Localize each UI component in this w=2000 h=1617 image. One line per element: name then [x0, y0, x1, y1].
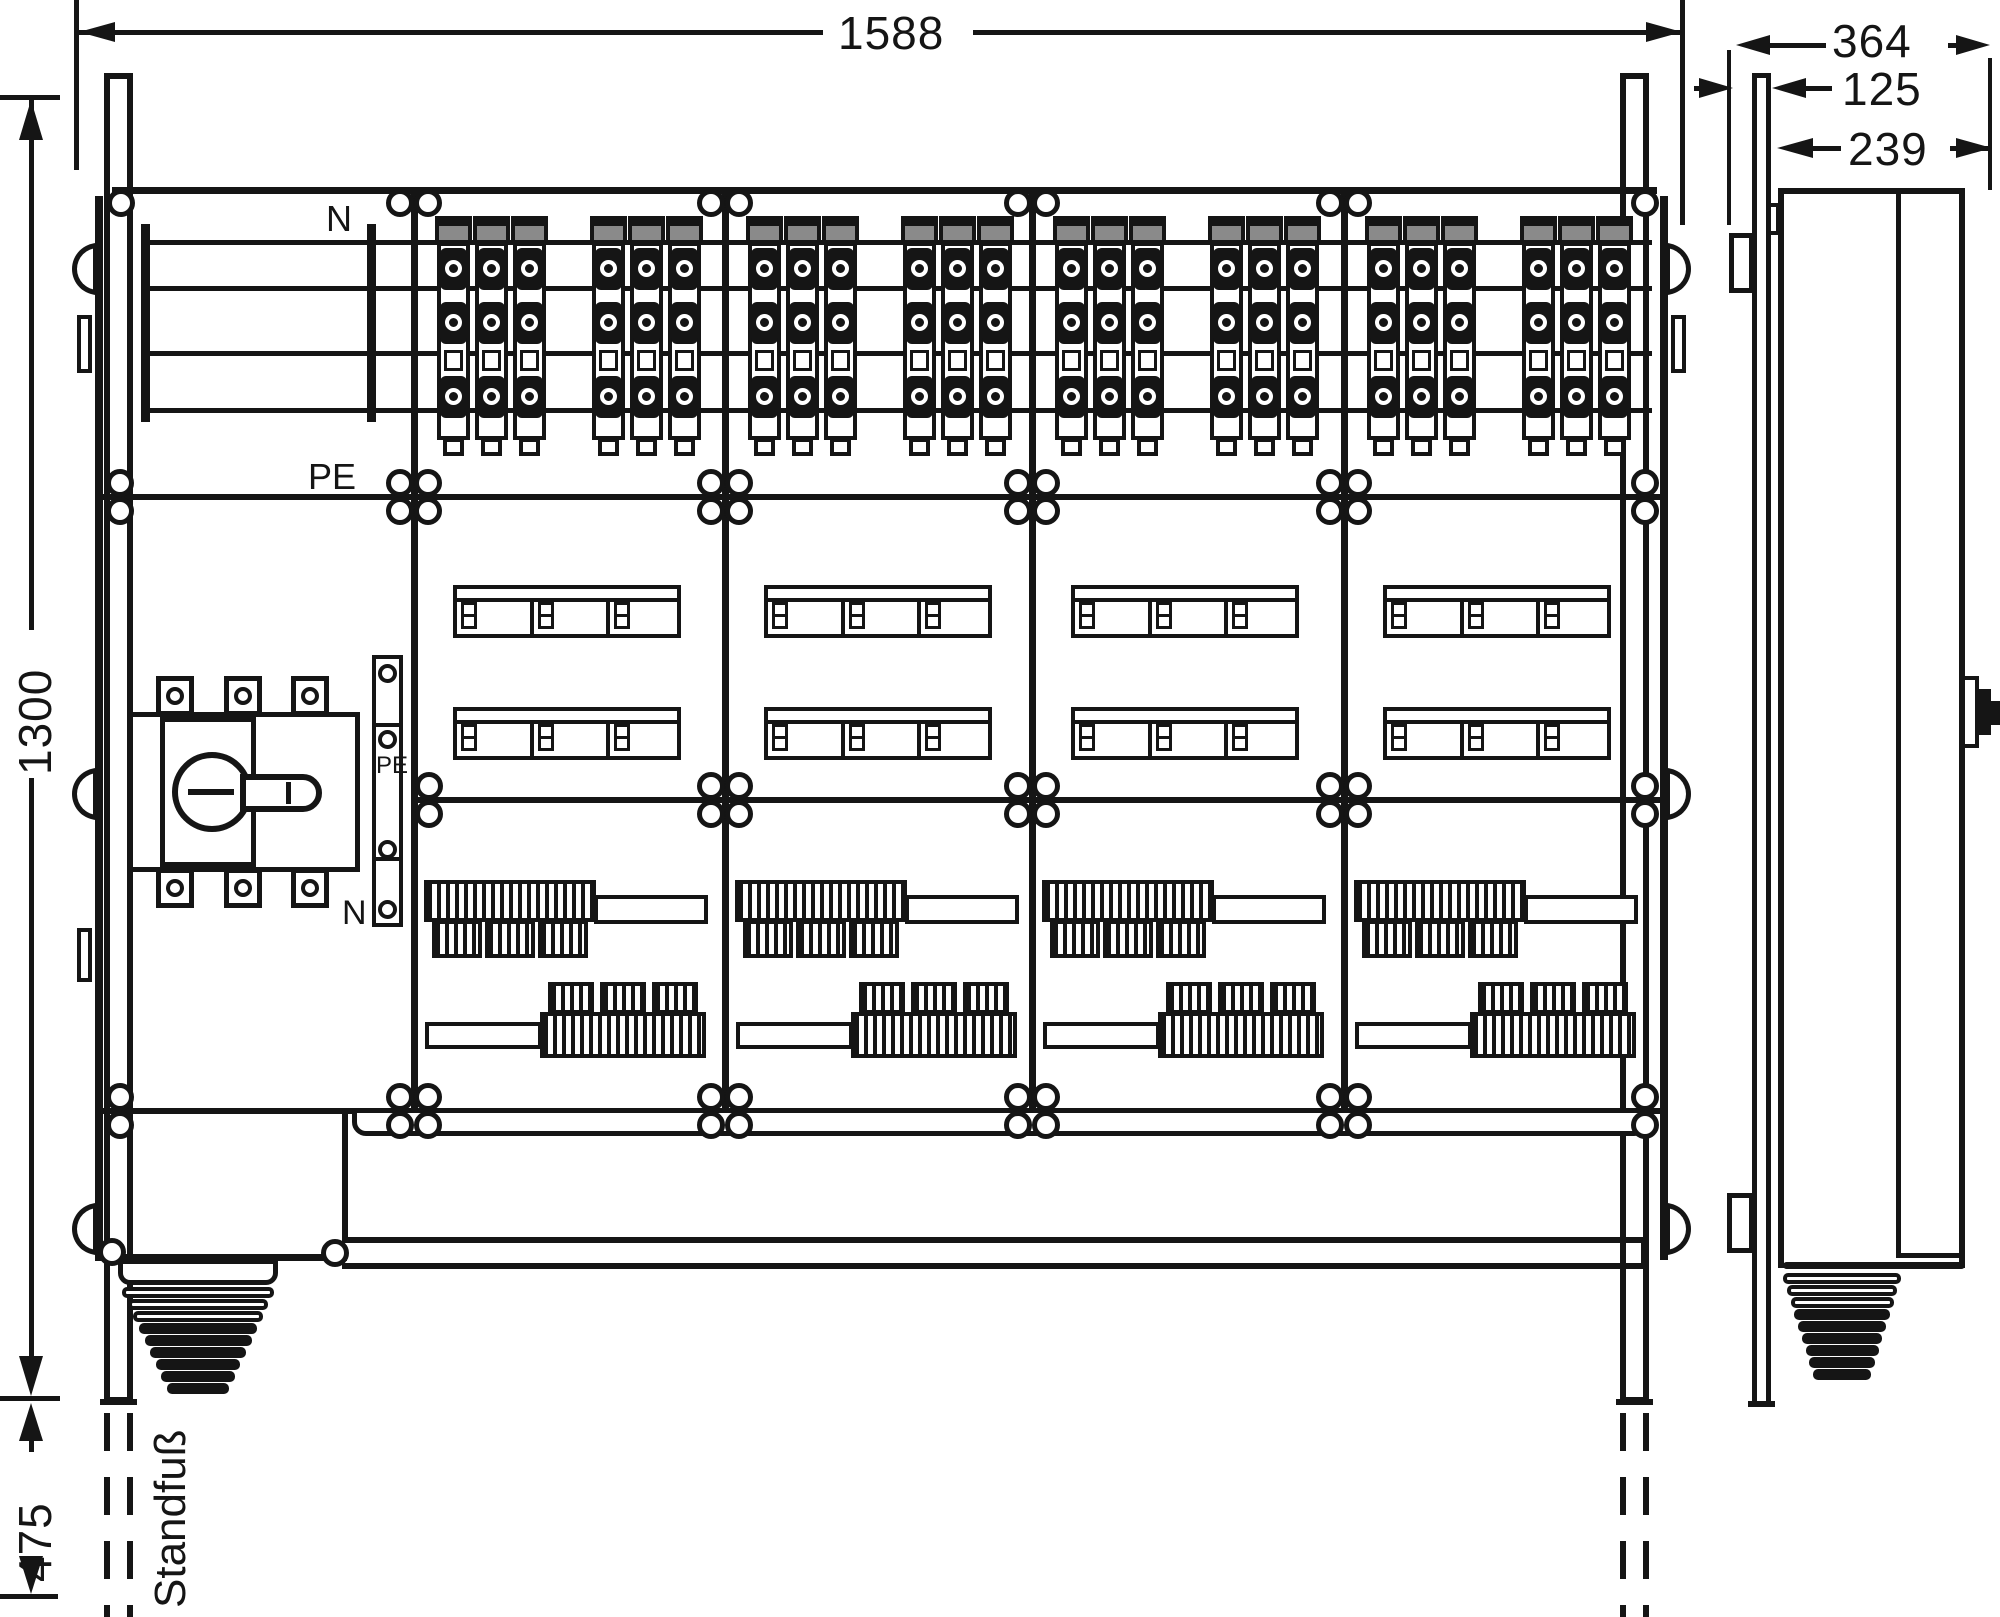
- terminal-strip-cap: [1129, 222, 1166, 244]
- arrow-right-icon: [1699, 78, 1733, 98]
- busbar-cover-ribbed: [735, 880, 907, 922]
- side-leg-post: [1752, 73, 1771, 1407]
- busbar-cover-tab: [1166, 982, 1212, 1014]
- arrow-left-icon: [1777, 138, 1813, 158]
- gland-rib: [1802, 1333, 1883, 1344]
- terminal-screw: [483, 314, 500, 331]
- corner-screw: [386, 469, 414, 497]
- busbar-cover-tab: [652, 982, 698, 1014]
- corner-screw: [1032, 1083, 1060, 1111]
- corner-screw: [725, 497, 753, 525]
- terminal-strip-foot: [1411, 438, 1432, 456]
- terminal-screw: [521, 388, 538, 405]
- busbar-cover-tab: [548, 982, 594, 1014]
- fuse-section-divider: [1536, 598, 1540, 634]
- terminal-window: [1412, 350, 1431, 371]
- fuse-latch-line: [1232, 736, 1248, 739]
- terminal-strip-cap: [1246, 222, 1283, 244]
- terminal-screw: [1101, 388, 1118, 405]
- fuse-latch-line: [1232, 614, 1248, 617]
- terminal-screw: [756, 388, 773, 405]
- terminal-screw: [1451, 388, 1468, 405]
- wall-bracket: [1729, 233, 1754, 293]
- busbar-cover-bar: [1212, 895, 1326, 924]
- terminal-screw: [949, 388, 966, 405]
- terminal-strip-cap: [901, 222, 938, 244]
- busbar-cover-tab: [1218, 982, 1264, 1014]
- corner-screw: [1032, 772, 1060, 800]
- corner-screw: [106, 469, 134, 497]
- busbar-cover-bar: [1043, 1022, 1160, 1049]
- terminal-screw: [1256, 314, 1273, 331]
- busbar-cover-tab: [1103, 920, 1153, 958]
- fuse-latch-line: [1468, 736, 1484, 739]
- terminal-window: [482, 350, 501, 371]
- terminal-screw: [1606, 260, 1623, 277]
- busbar-cover-tab: [600, 982, 646, 1014]
- fuse-section-divider: [1224, 598, 1228, 634]
- terminal-screw: [483, 388, 500, 405]
- gland-rib: [1813, 1369, 1871, 1380]
- fuse-strip-line: [1387, 720, 1607, 724]
- terminal-screw: [676, 260, 693, 277]
- fuse-section-divider: [1224, 720, 1228, 756]
- dim-line-depth-total: [1766, 43, 1826, 48]
- corner-screw: [1004, 189, 1032, 217]
- terminal-strip-cap: [977, 222, 1014, 244]
- terminal-screw: [1451, 260, 1468, 277]
- terminal-screw: [521, 260, 538, 277]
- fuse-section-divider: [1460, 598, 1464, 634]
- terminal-strip-foot: [1099, 438, 1120, 456]
- wall-hinge: [1665, 1203, 1691, 1255]
- wall-bracket: [1727, 1193, 1754, 1253]
- dim-depth-total-value: 364: [1832, 14, 1912, 68]
- fuse-strip-line: [768, 720, 988, 724]
- dim-line-height: [29, 778, 34, 1358]
- fuse-strip: [1071, 585, 1299, 638]
- fuse-latch-line: [1156, 614, 1172, 617]
- dim-depth-body-value: 239: [1848, 122, 1928, 176]
- terminal-screw: [166, 879, 184, 897]
- terminal-strip-foot: [636, 438, 657, 456]
- corner-screw: [725, 469, 753, 497]
- wall-hinge: [72, 243, 98, 295]
- dim-width-value: 1588: [838, 6, 944, 60]
- terminal-strip-foot: [1292, 438, 1313, 456]
- dim-height-value: 1300: [8, 669, 62, 775]
- terminal-strip-cap: [1365, 222, 1402, 244]
- corner-screw: [725, 800, 753, 828]
- terminal-screw: [911, 260, 928, 277]
- gland-rib: [1791, 1297, 1894, 1308]
- column-divider: [411, 193, 418, 1110]
- terminal-screw: [445, 260, 462, 277]
- corner-screw: [1631, 1111, 1659, 1139]
- terminal-screw: [794, 314, 811, 331]
- terminal-screw: [1568, 388, 1585, 405]
- wall-tab: [1671, 315, 1686, 373]
- corner-screw: [414, 1111, 442, 1139]
- busbar-cover-bar: [736, 1022, 853, 1049]
- fuse-latch-line: [538, 736, 554, 739]
- label-pe-terminal: PE: [376, 752, 408, 780]
- terminal-screw: [378, 664, 397, 683]
- terminal-strip-cap: [666, 222, 703, 244]
- terminal-window: [675, 350, 694, 371]
- busbar-cover-tab: [1530, 982, 1576, 1014]
- corner-screw: [1032, 469, 1060, 497]
- dim-ext-line: [1988, 58, 1992, 190]
- dim-line-width: [973, 30, 1682, 35]
- column-divider: [722, 193, 729, 1110]
- mounting-rail: [342, 1237, 1646, 1243]
- rotary-handle-lever-mark: [286, 782, 291, 804]
- terminal-strip-foot: [519, 438, 540, 456]
- terminal-strip-cap: [1596, 222, 1633, 244]
- terminal-window: [755, 350, 774, 371]
- terminal-screw: [1413, 314, 1430, 331]
- corner-screw: [697, 800, 725, 828]
- terminal-screw: [600, 388, 617, 405]
- terminal-window: [1217, 350, 1236, 371]
- terminal-screw: [1375, 260, 1392, 277]
- terminal-window: [637, 350, 656, 371]
- label-busbar-n: N: [326, 198, 352, 240]
- gland-rib: [122, 1287, 274, 1298]
- gland-rib: [1798, 1321, 1886, 1332]
- terminal-strip-foot: [947, 438, 968, 456]
- busbar-cover-tab: [743, 920, 793, 958]
- terminal-screw: [1256, 260, 1273, 277]
- terminal-strip-cap: [1208, 222, 1245, 244]
- wall-hinge: [1665, 243, 1691, 295]
- terminal-screw: [301, 879, 319, 897]
- corner-screw: [1004, 772, 1032, 800]
- fuse-latch-line: [772, 614, 788, 617]
- terminal-strip-foot: [985, 438, 1006, 456]
- fuse-section-divider: [606, 720, 610, 756]
- enclosure-bottom-lip: [352, 1108, 1648, 1136]
- gland-rib: [167, 1383, 229, 1394]
- fuse-strip: [1383, 585, 1611, 638]
- busbar-cover-tab: [859, 982, 905, 1014]
- busbar-cover-tab: [485, 920, 535, 958]
- terminal-strip-foot: [443, 438, 464, 456]
- busbar-cover-ribbed: [851, 1012, 1017, 1058]
- terminal-strip-cap: [435, 222, 472, 244]
- terminal-window: [1374, 350, 1393, 371]
- terminal-screw: [1375, 314, 1392, 331]
- fuse-latch-line: [1468, 614, 1484, 617]
- rotary-handle-lever: [240, 774, 322, 812]
- fuse-latch-line: [772, 736, 788, 739]
- terminal-screw: [756, 314, 773, 331]
- corner-screw: [1004, 1083, 1032, 1111]
- fuse-section-divider: [917, 598, 921, 634]
- terminal-screw: [638, 260, 655, 277]
- corner-screw: [1631, 1083, 1659, 1111]
- wall-tab: [77, 928, 92, 982]
- corner-screw: [107, 189, 135, 217]
- fuse-latch-line: [1544, 614, 1560, 617]
- terminal-strip-foot: [1373, 438, 1394, 456]
- fuse-strip: [453, 585, 681, 638]
- terminal-screw: [1139, 388, 1156, 405]
- terminal-strip-foot: [1604, 438, 1625, 456]
- terminal-screw: [1139, 314, 1156, 331]
- dim-line-foot: [29, 1438, 34, 1452]
- fuse-strip-line: [1075, 720, 1295, 724]
- corner-screw: [106, 497, 134, 525]
- terminal-strip-cap: [1091, 222, 1128, 244]
- arrow-up-icon: [19, 1403, 43, 1441]
- terminal-strip-foot: [1566, 438, 1587, 456]
- corner-screw: [1316, 1083, 1344, 1111]
- fuse-latch-line: [1391, 736, 1407, 739]
- terminal-strip-cap: [784, 222, 821, 244]
- leg-base: [100, 1399, 137, 1405]
- fuse-strip-line: [457, 720, 677, 724]
- mounting-rail: [342, 1263, 1646, 1269]
- fuse-section-divider: [530, 598, 534, 634]
- dim-tick: [0, 1396, 60, 1401]
- pe-strip-body: [372, 655, 403, 927]
- terminal-window: [1138, 350, 1157, 371]
- side-bottom-inner: [1898, 1253, 1962, 1258]
- terminal-strip-foot: [674, 438, 695, 456]
- terminal-screw: [1606, 314, 1623, 331]
- fuse-strip: [764, 585, 992, 638]
- arrow-up-icon: [19, 100, 43, 140]
- corner-screw: [725, 1083, 753, 1111]
- terminal-screw: [600, 260, 617, 277]
- dim-tick: [0, 1594, 58, 1599]
- arrow-down-icon: [19, 1356, 43, 1396]
- terminal-strip-foot: [1216, 438, 1237, 456]
- terminal-screw: [832, 388, 849, 405]
- terminal-strip-cap: [1403, 222, 1440, 244]
- terminal-screw: [638, 388, 655, 405]
- terminal-strip-foot: [754, 438, 775, 456]
- fuse-strip: [764, 707, 992, 760]
- stand-foot-dashed: [1620, 1413, 1626, 1617]
- enclosure-wall-left: [95, 196, 103, 1260]
- terminal-window: [1100, 350, 1119, 371]
- terminal-window: [948, 350, 967, 371]
- terminal-strip-cap: [473, 222, 510, 244]
- column-divider: [1029, 193, 1036, 1110]
- busbar-cover-bar: [1355, 1022, 1472, 1049]
- stand-foot-dashed: [127, 1413, 133, 1617]
- fuse-latch-line: [461, 736, 477, 739]
- fuse-latch-line: [538, 614, 554, 617]
- busbar-cover-ribbed: [1470, 1012, 1636, 1058]
- terminal-screw: [987, 314, 1004, 331]
- corner-screw: [1004, 1111, 1032, 1139]
- gland-rib: [1787, 1285, 1898, 1296]
- terminal-window: [793, 350, 812, 371]
- corner-screw: [106, 1083, 134, 1111]
- terminal-screw: [794, 260, 811, 277]
- gland-rib: [133, 1311, 263, 1322]
- terminal-screw: [756, 260, 773, 277]
- busbar-cover-tab: [538, 920, 588, 958]
- door-lock-knob: [1991, 701, 2000, 725]
- side-back-wall: [1778, 188, 1784, 1268]
- fuse-latch-line: [849, 736, 865, 739]
- corner-screw: [1004, 497, 1032, 525]
- corner-screw: [106, 1111, 134, 1139]
- fuse-section-divider: [841, 720, 845, 756]
- gland-rib: [156, 1359, 241, 1370]
- terminal-screw: [949, 260, 966, 277]
- corner-screw: [1316, 469, 1344, 497]
- side-inner-line: [1896, 193, 1901, 1258]
- terminal-screw: [378, 730, 397, 749]
- terminal-screw: [1256, 388, 1273, 405]
- corner-screw: [386, 1083, 414, 1111]
- fuse-latch-line: [614, 736, 630, 739]
- corner-screw: [1032, 497, 1060, 525]
- terminal-window: [520, 350, 539, 371]
- busbar-cover-tab: [1156, 920, 1206, 958]
- terminal-screw: [1294, 260, 1311, 277]
- busbar-cover-bar: [425, 1022, 542, 1049]
- gland-lip: [118, 1259, 278, 1285]
- corner-screw: [414, 497, 442, 525]
- terminal-strip-cap: [1558, 222, 1595, 244]
- corner-screw: [1316, 1111, 1344, 1139]
- fuse-latch-line: [461, 614, 477, 617]
- busbar-cover-ribbed: [1042, 880, 1214, 922]
- column-divider: [1341, 193, 1348, 1110]
- fuse-latch-line: [1079, 736, 1095, 739]
- corner-screw: [1344, 800, 1372, 828]
- fuse-latch-line: [849, 614, 865, 617]
- technical-drawing: 1588 1300 475 364 125 239 Standfuß: [0, 0, 2000, 1617]
- busbar-support: [141, 224, 150, 422]
- dim-ext-line: [1727, 50, 1731, 225]
- terminal-screw: [987, 388, 1004, 405]
- terminal-strip-cap: [1053, 222, 1090, 244]
- arrow-right-icon: [1956, 138, 1992, 158]
- arrow-left-icon: [1736, 35, 1770, 55]
- corner-screw: [697, 469, 725, 497]
- terminal-window: [1529, 350, 1548, 371]
- corner-screw: [1344, 469, 1372, 497]
- stand-foot-dashed: [104, 1413, 110, 1617]
- arrow-right-icon: [1956, 35, 1990, 55]
- terminal-screw: [166, 687, 184, 705]
- fuse-section-divider: [1460, 720, 1464, 756]
- busbar-cover-tab: [911, 982, 957, 1014]
- busbar-cover-tab: [1468, 920, 1518, 958]
- gland-rib: [139, 1323, 257, 1334]
- terminal-screw: [794, 388, 811, 405]
- terminal-screw: [1218, 260, 1235, 277]
- terminal-screw: [378, 900, 397, 919]
- gland-rib: [1806, 1345, 1879, 1356]
- gland-rib: [128, 1299, 269, 1310]
- corner-screw: [98, 1238, 126, 1266]
- label-n-terminal: N: [342, 894, 367, 933]
- terminal-screw: [832, 314, 849, 331]
- terminal-screw: [676, 314, 693, 331]
- corner-screw: [1032, 800, 1060, 828]
- wall-hinge: [72, 768, 98, 820]
- leg-base: [1616, 1399, 1653, 1405]
- busbar-cover-tab: [1270, 982, 1316, 1014]
- dim-line-width: [79, 30, 823, 35]
- label-busbar-pe: PE: [308, 456, 356, 498]
- wall-tab: [77, 315, 92, 373]
- terminal-strip-cap: [939, 222, 976, 244]
- terminal-screw: [445, 388, 462, 405]
- terminal-strip-foot: [1137, 438, 1158, 456]
- corner-screw: [697, 189, 725, 217]
- corner-screw: [1032, 189, 1060, 217]
- terminal-screw: [1451, 314, 1468, 331]
- corner-screw: [1344, 1111, 1372, 1139]
- corner-screw: [697, 1111, 725, 1139]
- terminal-screw: [911, 314, 928, 331]
- terminal-strip-foot: [1254, 438, 1275, 456]
- busbar-cover-tab: [796, 920, 846, 958]
- fuse-section-divider: [917, 720, 921, 756]
- terminal-strip-cap: [1284, 222, 1321, 244]
- terminal-screw: [445, 314, 462, 331]
- terminal-screw: [1063, 260, 1080, 277]
- dim-line-depth-wall: [1806, 86, 1832, 91]
- column-divider-lower: [342, 1110, 348, 1242]
- terminal-strip-foot: [792, 438, 813, 456]
- corner-screw: [414, 1083, 442, 1111]
- dim-depth-wall-value: 125: [1842, 62, 1922, 116]
- terminal-strip-foot: [1449, 438, 1470, 456]
- terminal-screw: [1568, 314, 1585, 331]
- fuse-strip: [1071, 707, 1299, 760]
- fuse-section-divider: [1148, 598, 1152, 634]
- busbar-support: [367, 224, 376, 422]
- corner-screw: [414, 469, 442, 497]
- corner-screw: [1316, 772, 1344, 800]
- enclosure-wall-right: [1660, 196, 1668, 1260]
- fuse-section-divider: [1148, 720, 1152, 756]
- corner-screw: [1004, 800, 1032, 828]
- fuse-latch-line: [925, 736, 941, 739]
- terminal-screw: [1413, 260, 1430, 277]
- busbar-cover-ribbed: [1158, 1012, 1324, 1058]
- terminal-screw: [832, 260, 849, 277]
- corner-screw: [386, 189, 414, 217]
- terminal-screw: [301, 687, 319, 705]
- terminal-screw: [378, 840, 397, 859]
- terminal-strip-cap: [628, 222, 665, 244]
- gland-rib: [1794, 1309, 1890, 1320]
- terminal-strip-cap: [746, 222, 783, 244]
- corner-screw: [321, 1239, 349, 1267]
- fuse-latch-line: [1544, 736, 1560, 739]
- enclosure-top-edge: [112, 187, 1657, 194]
- fuse-strip: [1383, 707, 1611, 760]
- busbar-cover-bar: [905, 895, 1019, 924]
- terminal-screw: [1101, 314, 1118, 331]
- corner-screw: [386, 497, 414, 525]
- fuse-latch-line: [1156, 736, 1172, 739]
- busbar-cover-bar: [594, 895, 708, 924]
- terminal-strip-cap: [1520, 222, 1557, 244]
